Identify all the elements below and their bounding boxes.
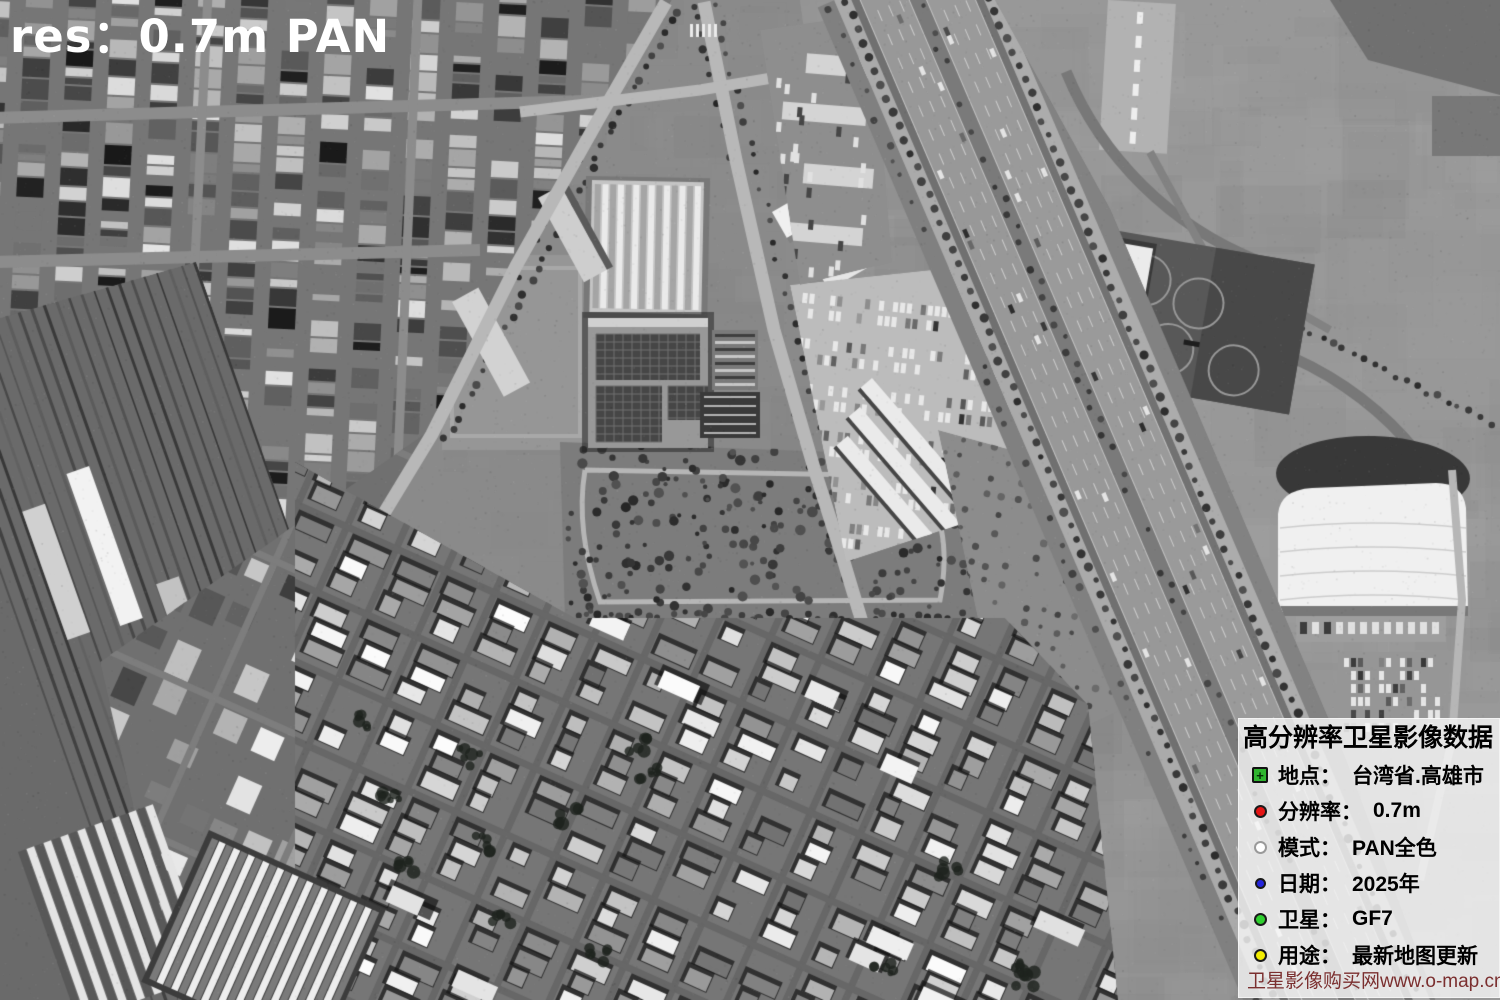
info-panel: 高分辨率卫星影像数据 地点： 台湾省.高雄市 分辨率： 0.7m 模式： PAN…	[1238, 718, 1500, 998]
row-label: 日期：	[1278, 868, 1341, 898]
resolution-dot-icon	[1254, 805, 1267, 818]
satellite-dot-icon	[1254, 913, 1267, 926]
satellite-map-view: res：0.7m PAN 高分辨率卫星影像数据 地点： 台湾省.高雄市 分辨率：…	[0, 0, 1500, 1000]
row-value: PAN全色	[1352, 832, 1437, 862]
location-icon	[1252, 767, 1268, 783]
info-row-satellite: 卫星： GF7	[1239, 901, 1499, 937]
date-dot-icon	[1255, 878, 1266, 889]
panel-footer-link: 卫星影像购买网www.o-map.cn	[1247, 966, 1500, 993]
row-label: 地点：	[1278, 760, 1341, 790]
mode-dot-icon	[1254, 841, 1267, 854]
row-label: 模式：	[1278, 832, 1341, 862]
purpose-dot-icon	[1254, 949, 1267, 962]
row-value: 2025年	[1352, 868, 1420, 898]
row-label: 卫星：	[1278, 904, 1341, 934]
panel-title: 高分辨率卫星影像数据	[1239, 719, 1499, 757]
row-value: 台湾省.高雄市	[1352, 760, 1484, 790]
info-row-location: 地点： 台湾省.高雄市	[1239, 757, 1499, 793]
row-value: GF7	[1352, 907, 1393, 931]
info-row-mode: 模式： PAN全色	[1239, 829, 1499, 865]
row-value: 0.7m	[1373, 799, 1421, 823]
row-label: 分辨率：	[1278, 796, 1362, 826]
info-row-date: 日期： 2025年	[1239, 865, 1499, 901]
info-row-resolution: 分辨率： 0.7m	[1239, 793, 1499, 829]
resolution-watermark: res：0.7m PAN	[10, 0, 390, 65]
